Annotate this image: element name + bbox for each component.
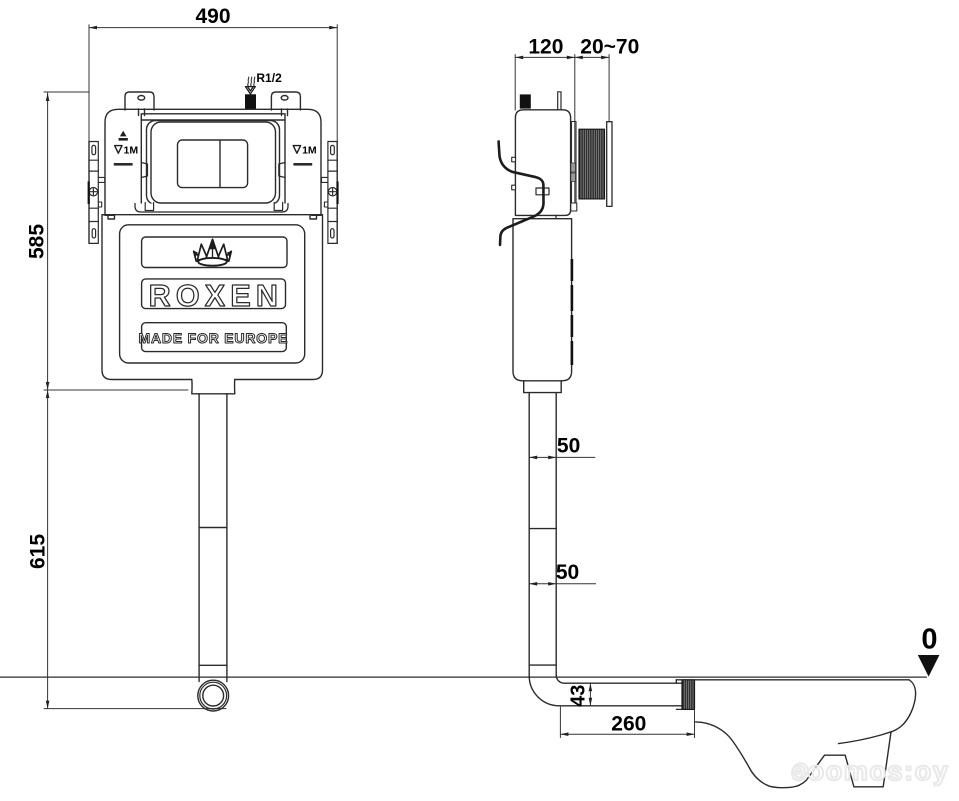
svg-text:0: 0 <box>921 624 937 656</box>
svg-text:43: 43 <box>567 685 589 707</box>
svg-text:20~70: 20~70 <box>580 35 639 58</box>
svg-text:260: 260 <box>611 712 646 735</box>
svg-text:50: 50 <box>557 434 580 457</box>
svg-text:120: 120 <box>528 35 563 58</box>
svg-text:490: 490 <box>195 5 230 28</box>
svg-text:R1/2: R1/2 <box>256 71 282 85</box>
svg-text:50: 50 <box>556 561 579 584</box>
svg-text:615: 615 <box>27 534 50 569</box>
svg-text:1M: 1M <box>124 145 139 157</box>
svg-text:ROXEN: ROXEN <box>149 279 283 313</box>
svg-text:585: 585 <box>26 224 49 259</box>
svg-text:1M: 1M <box>302 145 317 157</box>
svg-text:eoomos:oy: eoomos:oy <box>791 756 949 786</box>
svg-text:MADE FOR EUROPE: MADE FOR EUROPE <box>139 330 289 346</box>
